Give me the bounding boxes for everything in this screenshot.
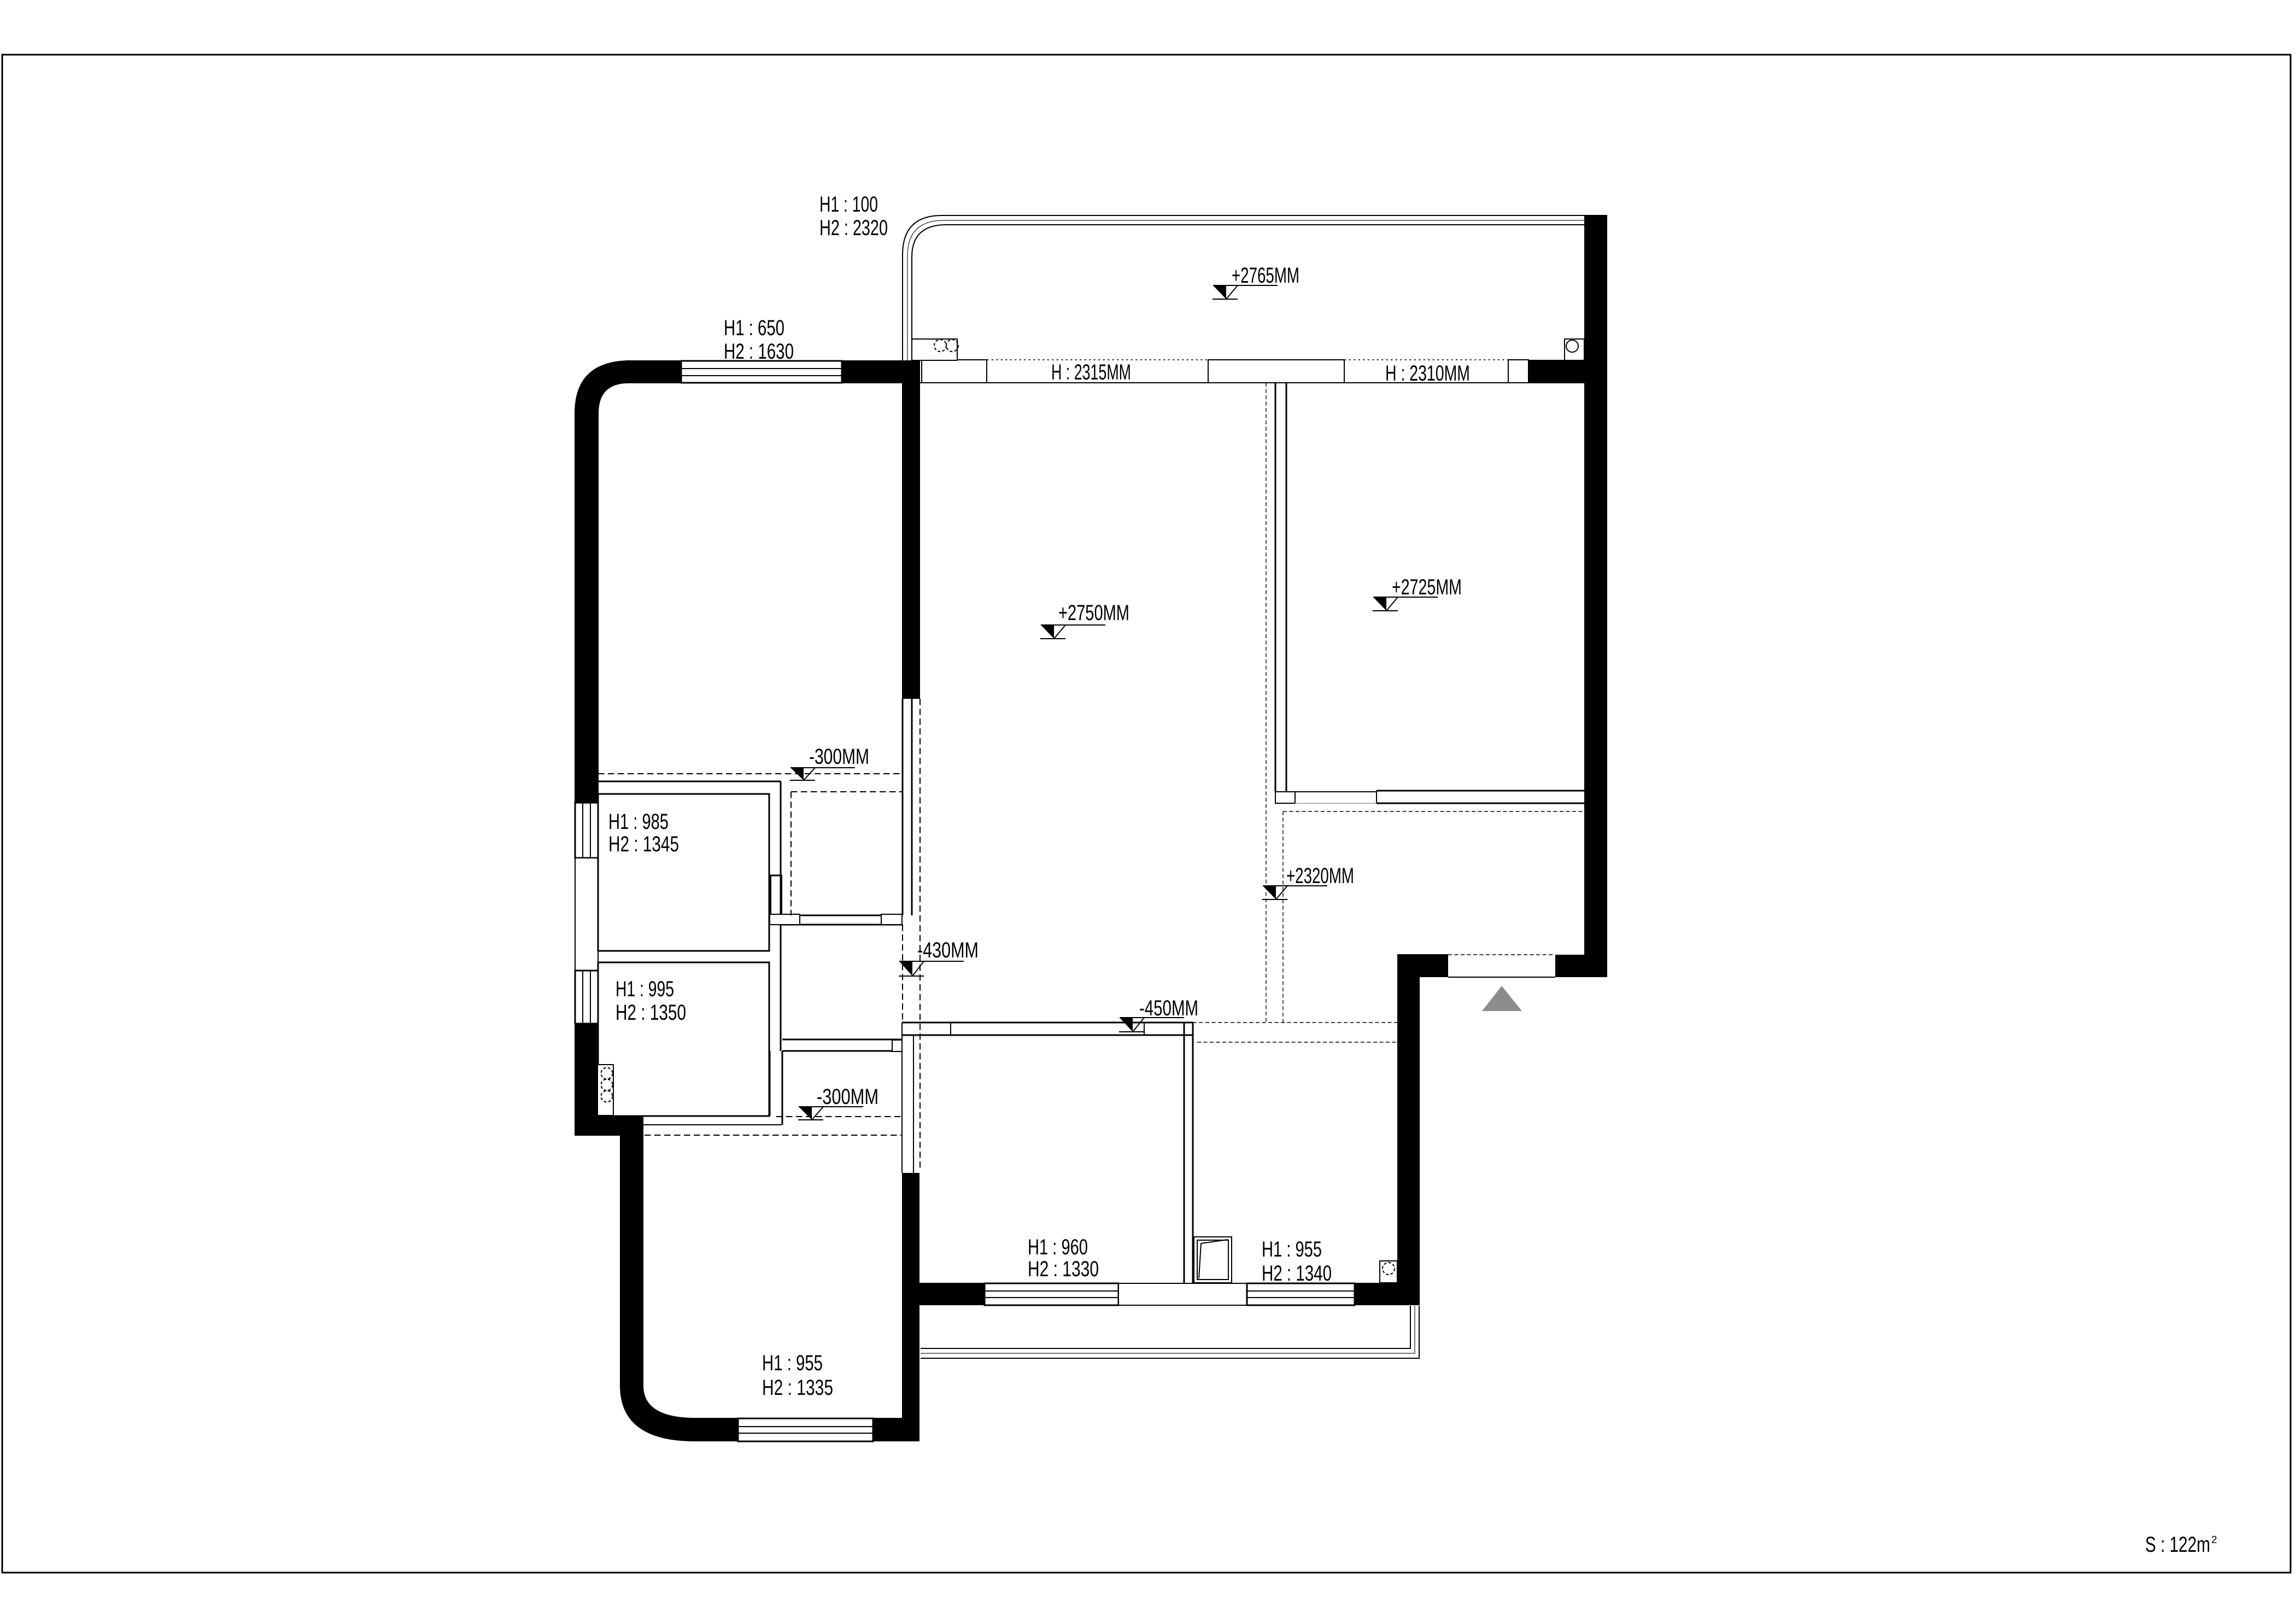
svg-text:H2 : 1340: H2 : 1340 [1262, 1261, 1332, 1286]
svg-text:2: 2 [2211, 1534, 2217, 1546]
svg-text:H1 : 955: H1 : 955 [1262, 1237, 1322, 1261]
svg-text:H1 : 985: H1 : 985 [608, 810, 669, 834]
svg-text:H1 : 650: H1 : 650 [724, 316, 784, 340]
svg-text:-430MM: -430MM [917, 938, 979, 962]
svg-text:H2 : 2320: H2 : 2320 [819, 216, 888, 240]
svg-text:H2 : 1345: H2 : 1345 [608, 832, 679, 856]
svg-text:-450MM: -450MM [1139, 996, 1198, 1020]
svg-text:H : 2315MM: H : 2315MM [1051, 360, 1131, 384]
svg-text:H1 : 100: H1 : 100 [819, 192, 878, 217]
svg-text:+2320MM: +2320MM [1286, 864, 1354, 888]
svg-text:H2 : 1330: H2 : 1330 [1028, 1257, 1099, 1281]
svg-text:+2765MM: +2765MM [1232, 264, 1299, 288]
svg-text:+2750MM: +2750MM [1058, 601, 1129, 625]
svg-text:-300MM: -300MM [809, 745, 869, 769]
svg-text:+2725MM: +2725MM [1392, 575, 1462, 599]
svg-text:H2 : 1630: H2 : 1630 [724, 340, 794, 364]
svg-text:S : 122m: S : 122m [2145, 1533, 2210, 1557]
svg-text:H1 : 955: H1 : 955 [762, 1351, 823, 1375]
svg-text:H1 : 960: H1 : 960 [1028, 1235, 1088, 1259]
svg-text:H1 : 995: H1 : 995 [616, 977, 674, 1001]
svg-text:-300MM: -300MM [817, 1085, 878, 1109]
svg-text:H : 2310MM: H : 2310MM [1385, 361, 1470, 385]
svg-text:H2 : 1335: H2 : 1335 [762, 1376, 833, 1400]
svg-text:H2 : 1350: H2 : 1350 [616, 1001, 686, 1025]
